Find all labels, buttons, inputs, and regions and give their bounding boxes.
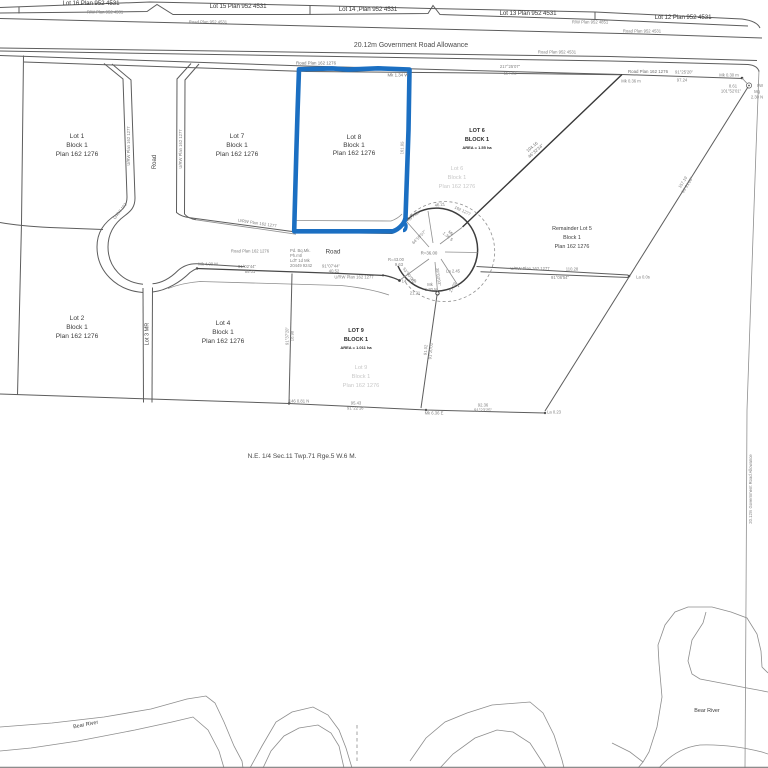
svg-text:2.30 N: 2.30 N xyxy=(751,95,763,100)
svg-text:Lot 12 Plan 952 4531: Lot 12 Plan 952 4531 xyxy=(655,14,712,21)
svg-text:Plan 162 1276: Plan 162 1276 xyxy=(333,150,376,157)
svg-text:Block 1: Block 1 xyxy=(563,235,581,241)
svg-text:La 0.0s: La 0.0s xyxy=(636,275,650,280)
svg-text:Road: Road xyxy=(326,249,341,256)
svg-text:91°23'25": 91°23'25" xyxy=(474,408,492,413)
svg-text:LOT 6: LOT 6 xyxy=(469,128,485,134)
svg-text:91°06'54": 91°06'54" xyxy=(551,275,569,280)
svg-text:U/RW Plan 162 1277: U/RW Plan 162 1277 xyxy=(334,275,374,280)
svg-text:Lot 3 MR: Lot 3 MR xyxy=(145,323,151,346)
svg-text:U/RW Plan 162 1277: U/RW Plan 162 1277 xyxy=(126,126,131,166)
svg-text:R=36.00: R=36.00 xyxy=(421,251,438,256)
svg-text:Plan 162 1276: Plan 162 1276 xyxy=(56,151,99,158)
svg-text:18.98: 18.98 xyxy=(290,330,295,341)
svg-text:1.30 N: 1.30 N xyxy=(425,287,437,292)
svg-text:Lot 9: Lot 9 xyxy=(355,365,368,371)
svg-text:Lot 6: Lot 6 xyxy=(451,166,464,172)
svg-text:Block 1: Block 1 xyxy=(448,175,467,181)
svg-text:Plan 162 1276: Plan 162 1276 xyxy=(216,151,259,158)
svg-text:Lot 14 ,Plan 952 4531: Lot 14 ,Plan 952 4531 xyxy=(339,6,398,13)
svg-text:Road: Road xyxy=(152,155,158,169)
svg-text:Lot 8: Lot 8 xyxy=(347,134,362,141)
svg-text:Lot 7: Lot 7 xyxy=(230,133,245,140)
svg-text:217°25'07": 217°25'07" xyxy=(500,64,521,69)
svg-text:Block 1: Block 1 xyxy=(226,142,248,149)
svg-text:161.05: 161.05 xyxy=(399,141,404,155)
svg-text:Road Plan 162 1276: Road Plan 162 1276 xyxy=(628,69,669,74)
svg-text:Lot 1: Lot 1 xyxy=(70,133,85,140)
svg-text:Plan 162 1276: Plan 162 1276 xyxy=(343,383,380,389)
svg-text:U/RW Plan 162 1277: U/RW Plan 162 1277 xyxy=(178,129,183,169)
svg-text:N.E. 1/4 Sec.11 Twp.71 Rge.5 W: N.E. 1/4 Sec.11 Twp.71 Rge.5 W.6 M. xyxy=(248,453,357,460)
svg-text:LOT 9: LOT 9 xyxy=(348,328,364,334)
svg-text:Block 1: Block 1 xyxy=(212,329,234,336)
svg-text:Road Plan 162 1276: Road Plan 162 1276 xyxy=(296,61,337,66)
svg-text:Plan 162 1276: Plan 162 1276 xyxy=(555,244,590,250)
svg-text:La 0.23: La 0.23 xyxy=(547,410,562,415)
svg-text:Block 1: Block 1 xyxy=(352,374,371,380)
svg-text:Lot 4: Lot 4 xyxy=(216,320,231,327)
svg-text:Lot 16 Plan 952 4531: Lot 16 Plan 952 4531 xyxy=(63,0,120,7)
svg-text:157.02: 157.02 xyxy=(504,71,517,76)
svg-text:Lot 15 Plan 952 4531: Lot 15 Plan 952 4531 xyxy=(210,3,267,10)
svg-text:Block 1: Block 1 xyxy=(343,142,365,149)
svg-text:20449 9242: 20449 9242 xyxy=(290,263,313,268)
svg-text:AREA = 1.55 ha: AREA = 1.55 ha xyxy=(462,145,492,150)
svg-text:AREA = 1.011 ha: AREA = 1.011 ha xyxy=(340,345,372,350)
svg-text:Plan 162 1276: Plan 162 1276 xyxy=(439,184,476,190)
svg-text:Mk 0.30 m: Mk 0.30 m xyxy=(719,73,739,78)
svg-text:BLOCK 1: BLOCK 1 xyxy=(465,137,489,143)
svg-text:91°22'16": 91°22'16" xyxy=(347,406,365,411)
svg-text:20.12m Government Road Allowan: 20.12m Government Road Allowance xyxy=(748,454,753,524)
svg-text:R/W Plan 952 4851: R/W Plan 952 4851 xyxy=(572,20,609,25)
svg-text:Plan 162 1276: Plan 162 1276 xyxy=(202,338,245,345)
svg-text:Road Plan 162 1276: Road Plan 162 1276 xyxy=(231,249,270,254)
svg-text:101°52'01": 101°52'01" xyxy=(721,89,742,94)
svg-text:Mk 1.34 W: Mk 1.34 W xyxy=(388,73,410,78)
svg-text:20.12m Government Road Allowan: 20.12m Government Road Allowance xyxy=(354,42,468,49)
svg-text:9.63: 9.63 xyxy=(395,262,404,267)
svg-text:Plan 162 1276: Plan 162 1276 xyxy=(56,333,99,340)
svg-text:BLOCK 1: BLOCK 1 xyxy=(344,337,368,343)
svg-text:Mg: Mg xyxy=(754,89,760,94)
svg-text:97.24: 97.24 xyxy=(677,78,688,83)
svg-text:Road Plan 952 4531: Road Plan 952 4531 xyxy=(538,50,577,55)
svg-text:91°25'20": 91°25'20" xyxy=(675,70,693,75)
svg-text:21.21: 21.21 xyxy=(410,291,421,296)
svg-text:Block 1: Block 1 xyxy=(66,324,88,331)
svg-text:Block 1: Block 1 xyxy=(66,142,88,149)
svg-text:R/W Plan 952 4531: R/W Plan 952 4531 xyxy=(87,10,124,15)
svg-text:146 0.81 N: 146 0.81 N xyxy=(289,399,310,404)
svg-text:U/RW Plan 162 1277: U/RW Plan 162 1277 xyxy=(510,266,550,271)
svg-text:Remainder Lot 5: Remainder Lot 5 xyxy=(552,226,592,232)
svg-text:Mk 0.36 m: Mk 0.36 m xyxy=(621,79,641,84)
svg-text:Bear River: Bear River xyxy=(694,708,720,714)
svg-text:La 2.45: La 2.45 xyxy=(446,269,461,274)
svg-text:Lot 2: Lot 2 xyxy=(70,315,85,322)
svg-text:Road Plan 952 4531: Road Plan 952 4531 xyxy=(623,29,662,34)
svg-text:Lot 13 Plan 952 4531: Lot 13 Plan 952 4531 xyxy=(500,10,557,17)
svg-text:40.52: 40.52 xyxy=(329,269,340,274)
svg-text:Mk 6.36 E: Mk 6.36 E xyxy=(425,411,444,416)
svg-text:89.01: 89.01 xyxy=(245,269,256,274)
svg-text:I/W: I/W xyxy=(757,83,763,88)
svg-text:110.28: 110.28 xyxy=(566,267,579,272)
